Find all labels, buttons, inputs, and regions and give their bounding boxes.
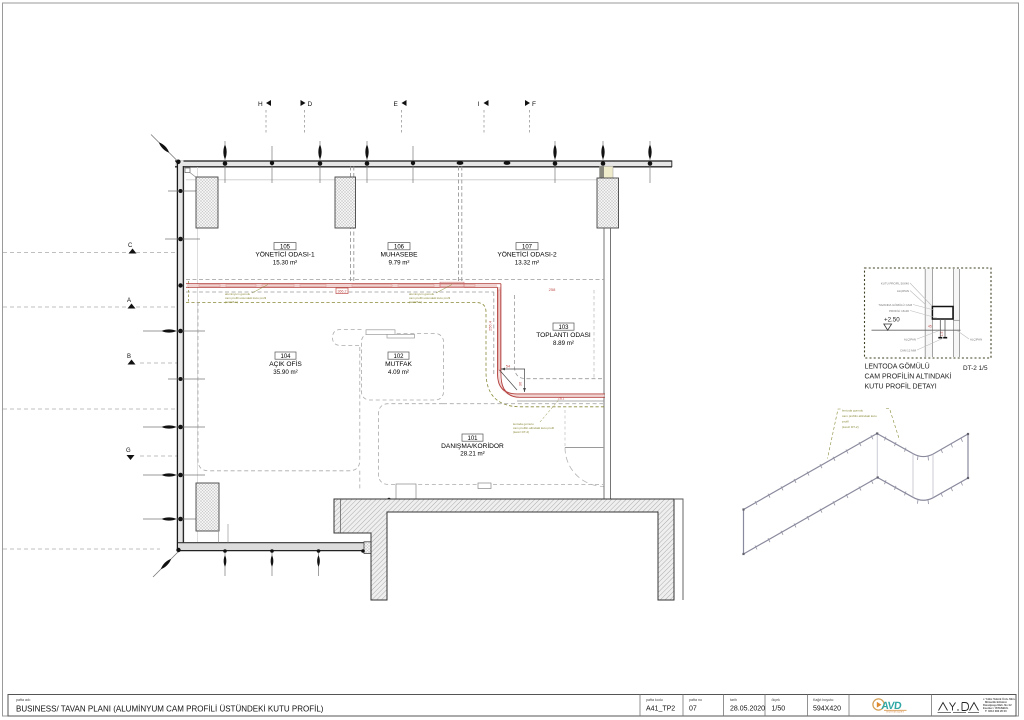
svg-text:101: 101 <box>467 436 478 442</box>
svg-text:258: 258 <box>549 287 556 292</box>
svg-text:104: 104 <box>280 354 291 360</box>
svg-text:36: 36 <box>518 381 523 386</box>
svg-text:+2.50: +2.50 <box>884 317 900 324</box>
svg-text:(ref DT-1): (ref DT-1) <box>409 300 422 304</box>
svg-text:pafta kodu: pafta kodu <box>646 698 663 702</box>
svg-text:YÖNETİCİ ODASI-2: YÖNETİCİ ODASI-2 <box>497 249 557 258</box>
svg-text:1/50: 1/50 <box>772 706 786 713</box>
svg-text:07: 07 <box>689 706 697 713</box>
svg-text:MUTFAK: MUTFAK <box>385 361 412 368</box>
svg-text:BUSINESS/ TAVAN PLANI (ALUMİN: BUSINESS/ TAVAN PLANI (ALUMİNYUM CAM PRO… <box>16 705 324 714</box>
svg-text:107: 107 <box>522 245 533 251</box>
svg-text:E: E <box>394 101 399 108</box>
svg-text:CAM 12 MM: CAM 12 MM <box>900 349 917 353</box>
svg-text:A: A <box>127 298 131 304</box>
svg-text:lentoda gomulu: lentoda gomulu <box>842 409 863 413</box>
svg-text:DANIŞMA/KORİDOR: DANIŞMA/KORİDOR <box>441 441 504 450</box>
svg-text:D: D <box>308 101 313 108</box>
svg-text:9.79 m²: 9.79 m² <box>389 259 410 266</box>
svg-text:8.89 m²: 8.89 m² <box>553 340 574 347</box>
svg-text:ALÇIPAN: ALÇIPAN <box>897 289 909 293</box>
svg-text:105: 105 <box>280 245 291 251</box>
svg-text:PROFİLİ 16x30: PROFİLİ 16x30 <box>889 308 909 313</box>
svg-text:103: 103 <box>558 325 569 331</box>
svg-text:B: B <box>127 354 131 360</box>
svg-text:G: G <box>126 448 131 454</box>
svg-text:(kesiz DT-2): (kesiz DT-2) <box>842 425 859 429</box>
svg-text:ALÇIPAN: ALÇIPAN <box>970 338 982 342</box>
svg-text:28.21 m²: 28.21 m² <box>460 451 484 458</box>
svg-text:A41_TP2: A41_TP2 <box>646 706 675 713</box>
svg-text:28.05.2020: 28.05.2020 <box>730 706 765 713</box>
svg-text:102: 102 <box>393 354 404 360</box>
svg-text:technologies: technologies <box>886 711 905 714</box>
svg-text:YÖNETİCİ ODASI-1: YÖNETİCİ ODASI-1 <box>255 249 315 258</box>
svg-text:I: I <box>478 101 480 108</box>
svg-text:106: 106 <box>394 245 405 251</box>
svg-text:KUTU PROFİL DETAYI: KUTU PROFİL DETAYI <box>865 381 937 390</box>
svg-text:H: H <box>258 101 263 108</box>
svg-text:KUTU PROFİL 50X40: KUTU PROFİL 50X40 <box>881 281 910 286</box>
svg-text:(ref DT-1): (ref DT-1) <box>225 300 238 304</box>
svg-text:1.5: 1.5 <box>940 332 944 337</box>
svg-text:4.09 m²: 4.09 m² <box>388 369 409 376</box>
svg-text:ölçek: ölçek <box>772 698 781 702</box>
svg-text:pafta no: pafta no <box>689 698 702 702</box>
svg-text:F: F <box>532 101 536 108</box>
svg-text:AÇIK OFİS: AÇIK OFİS <box>269 359 302 368</box>
svg-text:366.2: 366.2 <box>338 289 347 293</box>
svg-text:LENTODA GÖMÜLÜ: LENTODA GÖMÜLÜ <box>865 363 930 371</box>
svg-text:45: 45 <box>928 325 932 329</box>
svg-text:35.90 m²: 35.90 m² <box>273 369 297 376</box>
svg-text:594X420: 594X420 <box>813 706 841 713</box>
svg-text:T: 0212 383 26 00: T: 0212 383 26 00 <box>985 709 1007 713</box>
svg-text:DT-2 1/5: DT-2 1/5 <box>963 365 988 372</box>
svg-text:ALÇIPAN: ALÇIPAN <box>904 338 916 342</box>
svg-text:TAVANDA GÖMÜLÜ CAM: TAVANDA GÖMÜLÜ CAM <box>878 303 912 307</box>
svg-text:(kesiz DT-2): (kesiz DT-2) <box>513 430 529 434</box>
svg-text:15.30 m²: 15.30 m² <box>273 259 297 266</box>
svg-text:Kağıt boyutu:: Kağıt boyutu: <box>813 698 834 702</box>
svg-text:256.4: 256.4 <box>488 320 493 331</box>
svg-text:54: 54 <box>506 364 511 369</box>
svg-text:profil: profil <box>842 420 849 424</box>
svg-text:261: 261 <box>558 396 565 401</box>
svg-text:cam profilin altindaki kutu: cam profilin altindaki kutu <box>842 414 877 418</box>
svg-text:tarih: tarih <box>730 698 737 702</box>
svg-text:pafta adı:: pafta adı: <box>16 698 31 702</box>
svg-text:13.32 m²: 13.32 m² <box>515 259 539 266</box>
svg-text:MUHASEBE: MUHASEBE <box>380 251 418 258</box>
svg-text:TOPLANTI ODASI: TOPLANTI ODASI <box>536 332 591 339</box>
svg-text:CAM PROFİLİN ALTINDAKİ: CAM PROFİLİN ALTINDAKİ <box>865 372 952 381</box>
svg-text:C: C <box>128 243 133 249</box>
